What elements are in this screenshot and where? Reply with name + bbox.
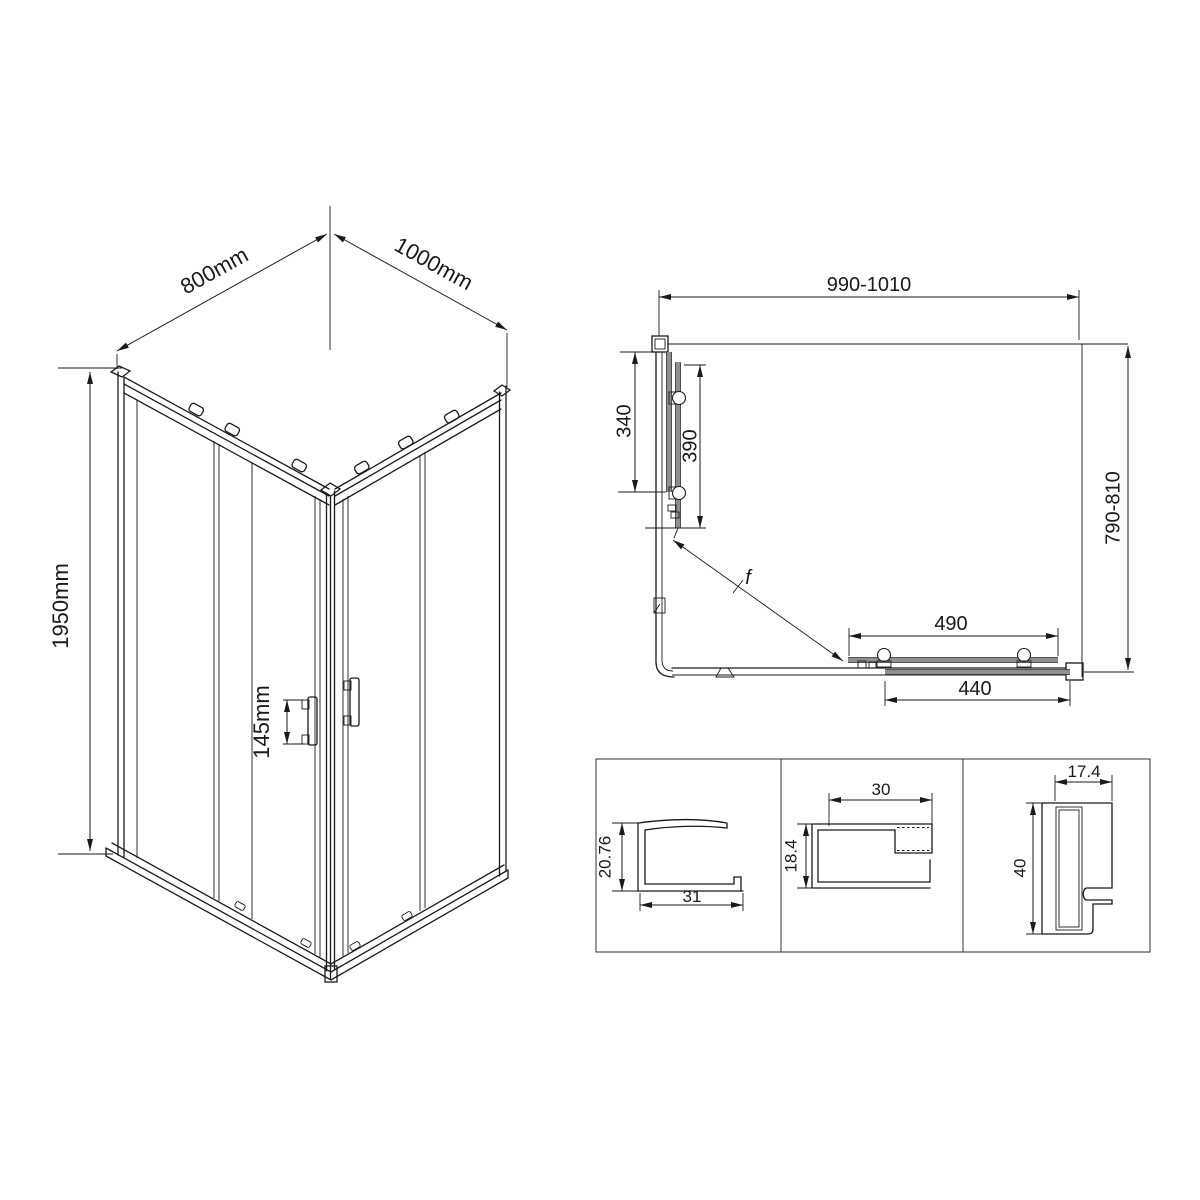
plan-dimension-lines: [618, 290, 1134, 706]
plan-walls: [652, 336, 1128, 680]
plan-glass-panels: [667, 352, 1071, 675]
plan-front-door-label: 490: [934, 613, 967, 635]
plan-width-label: 990-1010: [827, 274, 912, 296]
plan-view: f 990-1010 790-810 340 390 490 440: [613, 274, 1134, 706]
frame-profile-width-label: 30: [872, 780, 891, 799]
iso-height-label: 1950mm: [48, 563, 73, 649]
section-mark-label: f: [745, 567, 753, 589]
wall-profile-detail: 20.76 31: [595, 820, 743, 911]
top-roller-set: [188, 402, 460, 475]
iso-width-label: 800mm: [176, 242, 252, 299]
isometric-view: 800mm 1000mm 1950mm 145mm: [48, 206, 510, 982]
enclosure-frame: [106, 366, 510, 982]
plan-side-fixed-label: 340: [613, 404, 635, 437]
plan-depth-label: 790-810: [1102, 471, 1124, 544]
door-jamb-profile-detail: 17.4 40: [1010, 762, 1112, 934]
wall-profile-height-label: 20.76: [595, 836, 614, 879]
right-door-handle: [344, 678, 359, 726]
iso-handle-spacing-label: 145mm: [249, 685, 274, 758]
frame-profile-height-label: 18.4: [781, 839, 800, 872]
plan-front-fixed-label: 440: [958, 678, 991, 700]
frame-profile-detail: 30 18.4: [781, 780, 932, 888]
technical-drawing: 800mm 1000mm 1950mm 145mm: [0, 0, 1200, 1200]
wall-profile-width-label: 31: [683, 887, 702, 906]
glass-panel-edges: [137, 399, 425, 957]
profile-sections: 20.76 31 30 18.4: [595, 759, 1150, 952]
plan-rollers: [668, 392, 1031, 669]
jamb-profile-width-label: 17.4: [1067, 762, 1100, 781]
iso-dimension-lines: [58, 206, 507, 854]
door-opening-diagonal: f: [673, 540, 843, 661]
jamb-profile-height-label: 40: [1010, 859, 1029, 878]
plan-side-door-label: 390: [679, 429, 701, 462]
iso-depth-label: 1000mm: [390, 232, 477, 295]
